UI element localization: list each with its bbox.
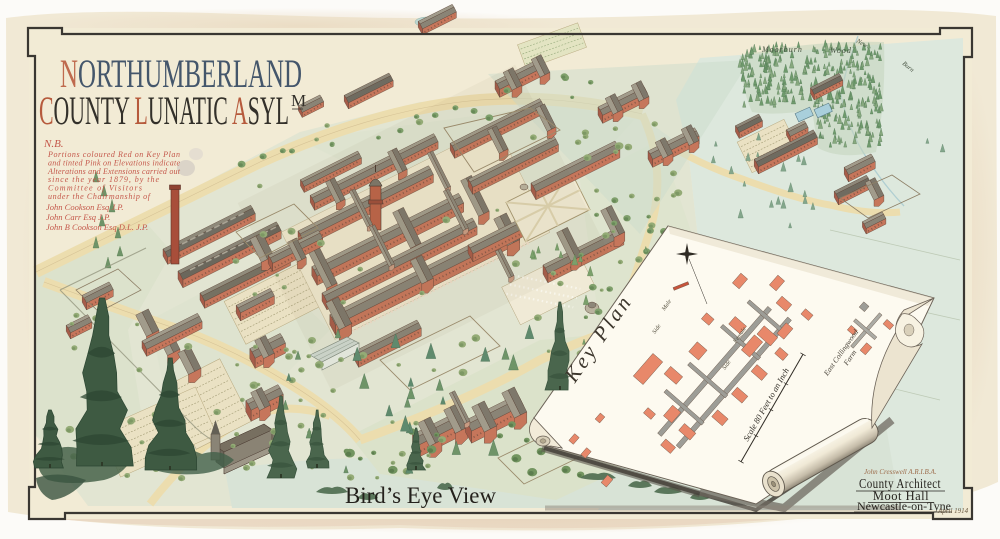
svg-text:Bird’s Eye View: Bird’s Eye View (345, 483, 496, 508)
svg-text:Moorburn: Moorburn (761, 45, 803, 54)
svg-text:John B Cookson Esq D.L. J.P.: John B Cookson Esq D.L. J.P. (46, 222, 148, 232)
svg-text:N.B.: N.B. (43, 138, 64, 150)
svg-text:M: M (291, 91, 306, 110)
svg-text:John Cookson Esq J.P.: John Cookson Esq J.P. (46, 202, 124, 212)
svg-text:John Carr Esq J.P.: John Carr Esq J.P. (46, 212, 110, 222)
svg-text:COUNTY LUNATIC ASYL: COUNTY LUNATIC ASYL (39, 88, 289, 133)
svg-text:Newcastle-on-Tyne: Newcastle-on-Tyne (857, 501, 951, 513)
svg-text:Wood: Wood (830, 46, 852, 55)
svg-text:April 1914: April 1914 (937, 507, 969, 515)
svg-text:under the Chairmanship of: under the Chairmanship of (48, 192, 152, 201)
svg-text:John Cresswell A.R.I.B.A.: John Cresswell A.R.I.B.A. (864, 468, 937, 476)
